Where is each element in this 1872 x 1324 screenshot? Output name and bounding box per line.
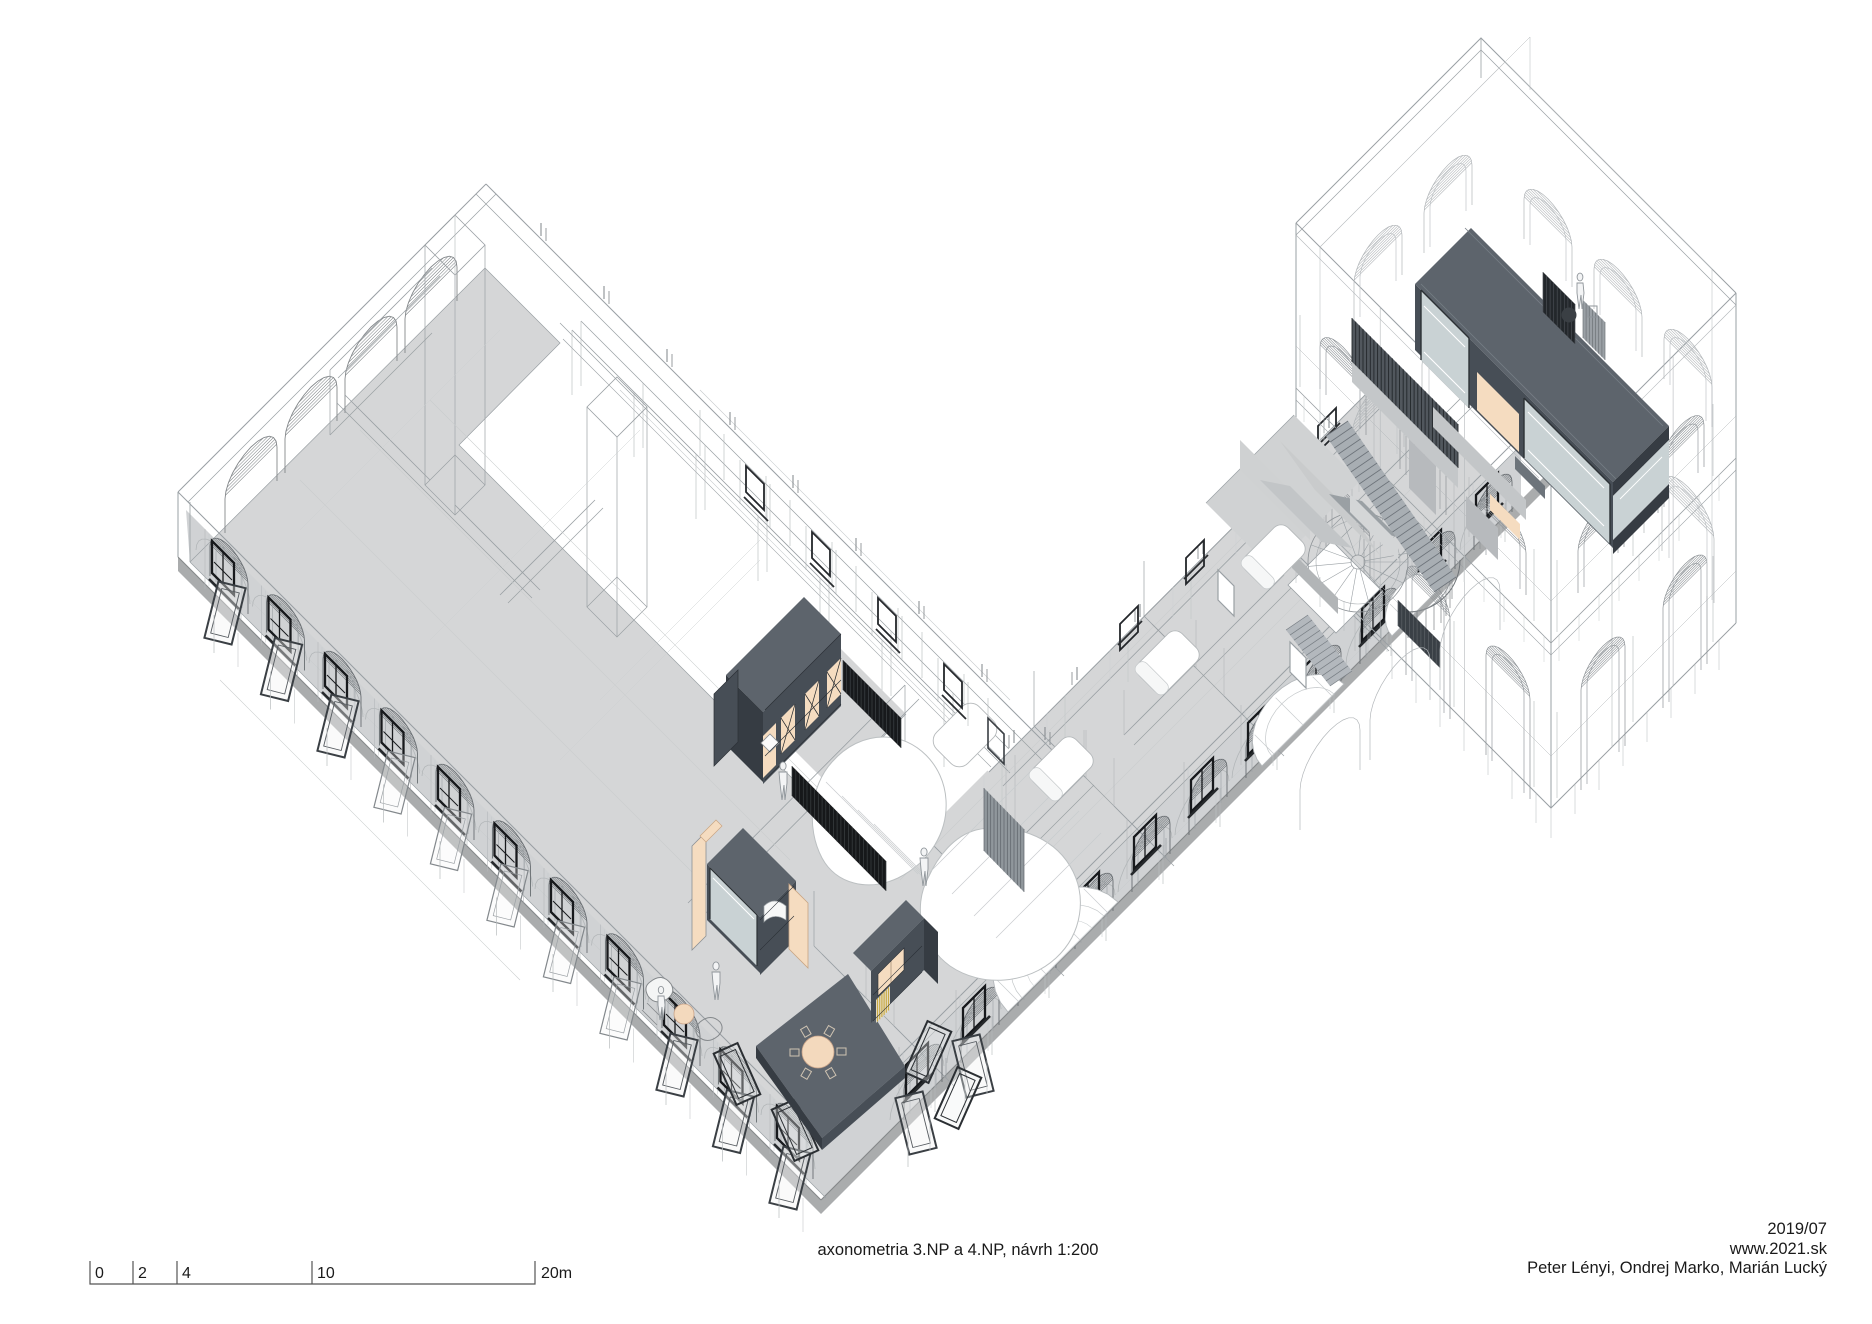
svg-text:20m: 20m: [541, 1265, 572, 1282]
svg-text:2019/07: 2019/07: [1767, 1220, 1827, 1238]
svg-text:4: 4: [182, 1265, 191, 1282]
svg-text:2: 2: [138, 1265, 147, 1282]
svg-text:Peter Lényi, Ondrej Marko, Mar: Peter Lényi, Ondrej Marko, Marián Lucký: [1527, 1259, 1828, 1277]
svg-text:axonometria 3.NP a 4.NP, návrh: axonometria 3.NP a 4.NP, návrh 1:200: [818, 1241, 1099, 1259]
svg-text:0: 0: [95, 1265, 104, 1282]
svg-text:www.2021.sk: www.2021.sk: [1729, 1240, 1828, 1258]
svg-text:10: 10: [317, 1265, 335, 1282]
